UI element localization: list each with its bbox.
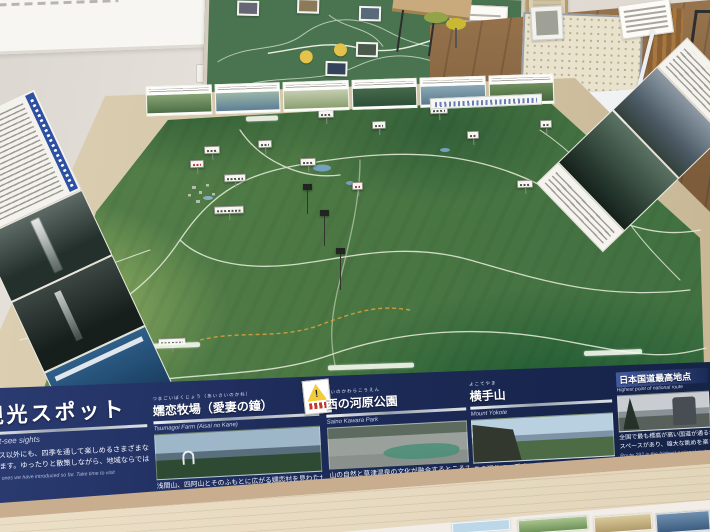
pinned-print <box>530 5 564 41</box>
spot-ruby: よこてやま <box>469 374 611 387</box>
warning-triangle-icon: ! <box>306 383 328 402</box>
spot-title-en: Tsumagoi Farm (Aisai no Kane) <box>154 418 320 433</box>
leaflet-photo <box>655 510 710 532</box>
intro-panel: 観光スポット Must-see sights コース以外にも、四季を通して楽しめ… <box>0 391 164 492</box>
yellow-stool <box>446 18 466 48</box>
panorama-photo <box>146 84 212 116</box>
intro-title-en: Must-see sights <box>0 428 162 446</box>
pinned-photo <box>356 42 378 58</box>
spot-body-jp: スペースがあり、雄大な眺めを楽しめます。 <box>619 439 710 453</box>
panorama-photo <box>283 80 349 112</box>
spot-title-en: Highest point of national route <box>617 383 709 394</box>
spot-title: 横手山 <box>469 380 612 404</box>
visitor-center-exhibit-photo: 観光スポット Must-see sights コース以外にも、四季を通して楽しめ… <box>0 0 710 532</box>
stone-monument <box>672 397 697 426</box>
spot-title: 西の河原公園 <box>325 388 466 412</box>
intro-title: 観光スポット <box>0 391 161 430</box>
panorama-photo <box>214 82 280 114</box>
spot-ruby: つまごいぼくじょう（あいさいのかね） <box>152 388 318 403</box>
spot-title-en: Saino Kawara Park <box>327 412 467 425</box>
pinned-photo <box>297 0 319 14</box>
pinned-photo <box>359 6 381 22</box>
stand-sheet <box>618 0 674 39</box>
spot-ruby: さいのかわらこうえん <box>325 382 465 395</box>
silver-rule <box>470 399 612 409</box>
intro-body-en: on the ones we have introduced so far. T… <box>0 468 164 485</box>
hot-spring-pond <box>383 442 460 461</box>
green-stool <box>424 12 448 23</box>
pinned-photo <box>237 0 259 16</box>
mount-yokote-photo <box>471 412 615 463</box>
spot-title-en: Mount Yokote <box>471 404 613 417</box>
spot-title: 嬬恋牧場（愛妻の鐘） <box>152 394 319 420</box>
closure-tag <box>309 402 327 410</box>
silver-rule <box>153 413 319 425</box>
warning-sign: ! <box>302 378 332 415</box>
intro-body-jp: あります。ゆったりと散策しながら、地域ならでは <box>0 452 163 472</box>
spot-title: 日本国道最高地点 <box>616 368 709 388</box>
intro-body-en: here. <box>0 475 164 492</box>
leaflet-photo <box>593 513 652 532</box>
tree-silhouette <box>622 397 640 429</box>
silver-rule <box>326 407 466 417</box>
tsumagoi-farm-photo <box>154 426 322 481</box>
silver-rule <box>0 424 147 436</box>
spot-panel-kokudo: 日本国道最高地点 Highest point of national route… <box>616 368 710 461</box>
bell-monument <box>182 450 195 465</box>
intro-body-jp: コース以外にも、四季を通して楽しめるさまざまな <box>0 441 163 461</box>
rocky-foreground <box>472 422 522 462</box>
highest-point-photo <box>617 391 710 433</box>
spot-body-jp: 全国で最も標高が高い国道が通る地点。記念碑の <box>619 430 710 444</box>
pinned-photo <box>325 61 347 77</box>
panorama-photo <box>351 78 417 110</box>
sainokawara-park-photo <box>327 420 469 469</box>
